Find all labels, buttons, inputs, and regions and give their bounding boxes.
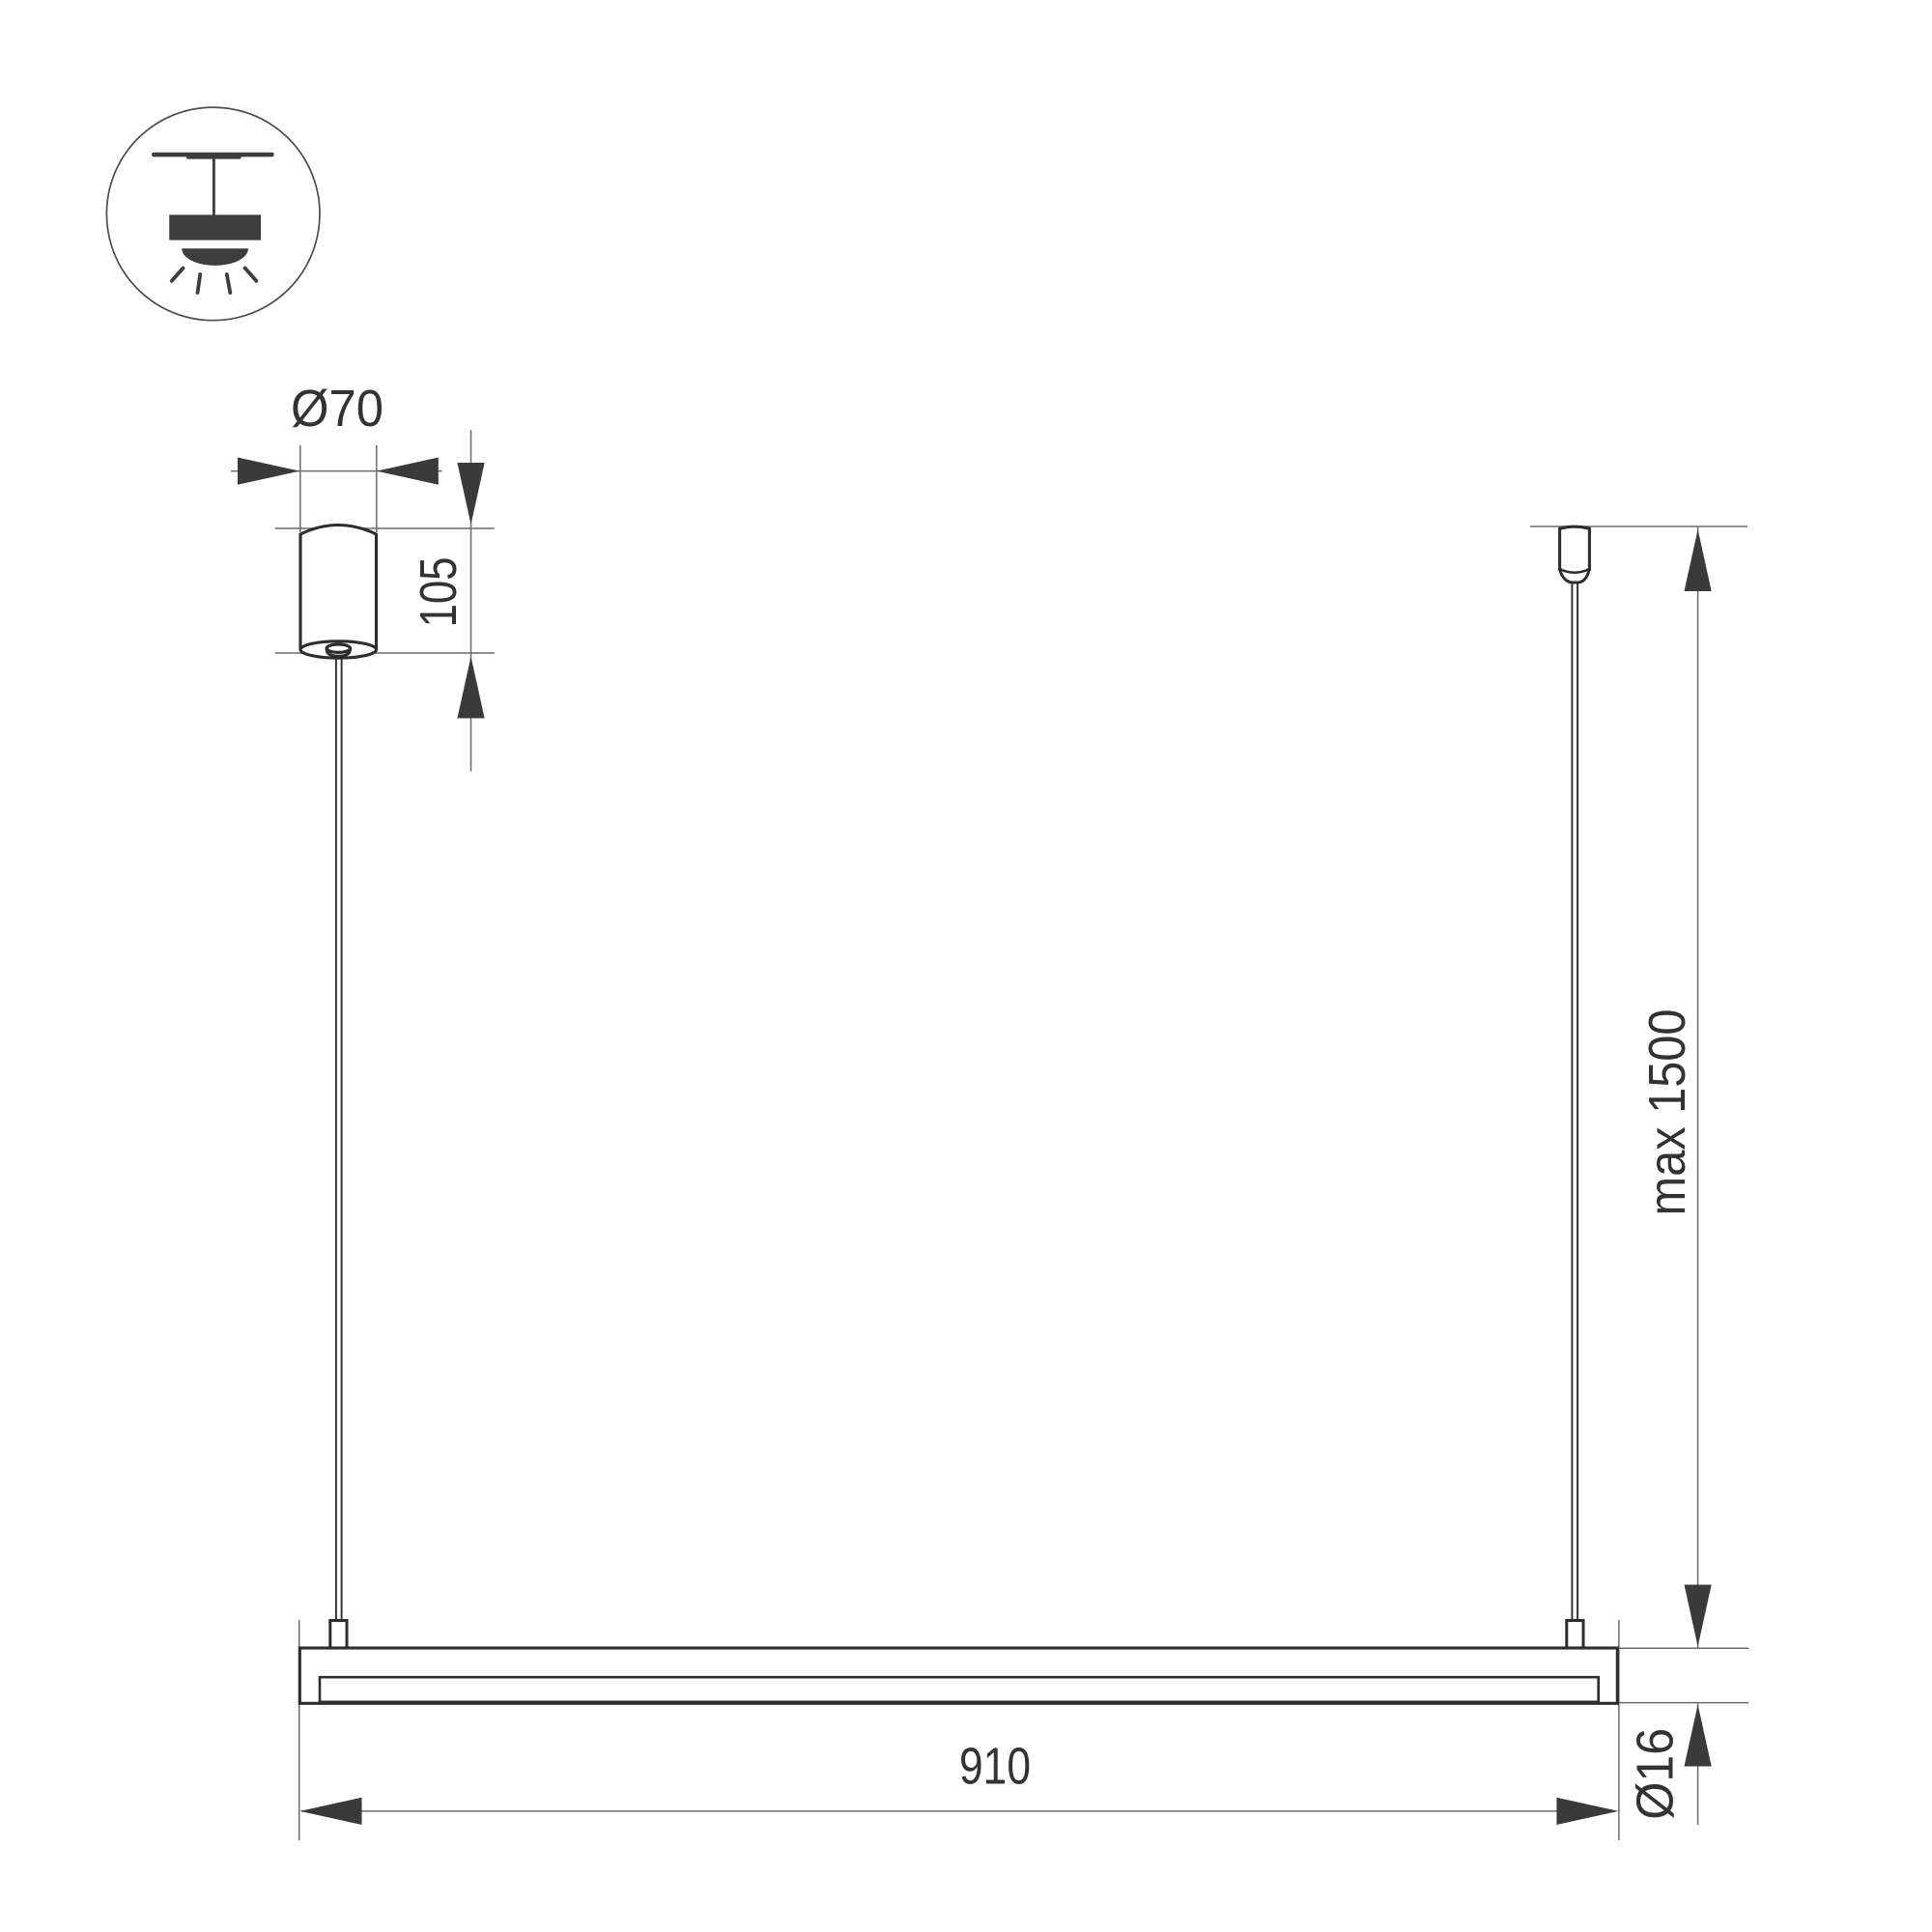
svg-text:Ø70: Ø70 [291,381,384,438]
svg-text:910: 910 [959,1739,1031,1796]
svg-text:105: 105 [411,557,468,628]
svg-text:max 1500: max 1500 [1639,1009,1696,1216]
svg-text:Ø16: Ø16 [1627,1728,1684,1820]
